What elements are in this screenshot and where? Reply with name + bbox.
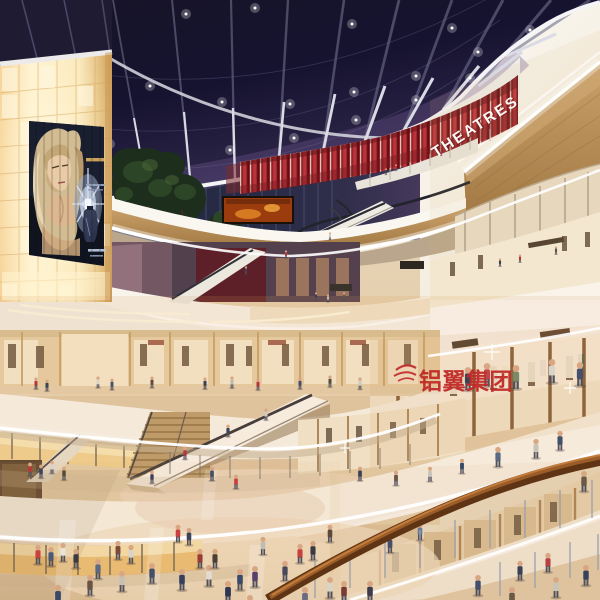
svg-text:铝翼集团: 铝翼集团 <box>419 368 513 394</box>
